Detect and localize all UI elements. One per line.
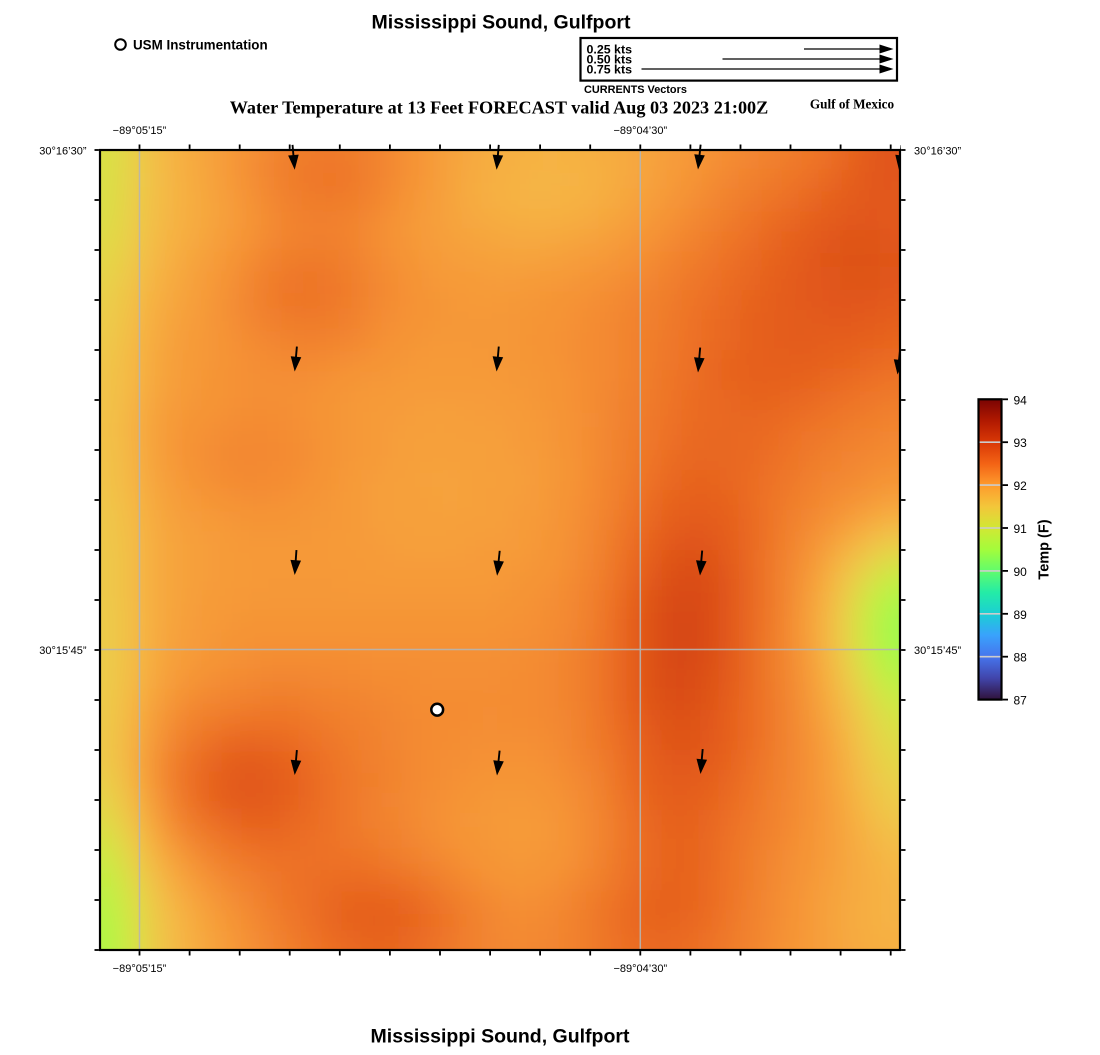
svg-text:CURRENTS Vectors: CURRENTS Vectors — [584, 84, 687, 96]
svg-text:Gulf of Mexico: Gulf of Mexico — [810, 97, 895, 112]
svg-text:94: 94 — [1014, 393, 1028, 407]
svg-text:−89°05’15”: −89°05’15” — [113, 963, 167, 975]
svg-text:93: 93 — [1014, 436, 1028, 450]
svg-text:87: 87 — [1014, 694, 1028, 708]
svg-text:−89°04’30”: −89°04’30” — [613, 125, 667, 137]
svg-text:88: 88 — [1014, 651, 1028, 665]
svg-text:30°15’45”: 30°15’45” — [39, 645, 87, 657]
svg-text:30°16’30”: 30°16’30” — [914, 146, 962, 158]
svg-text:0.75 kts: 0.75 kts — [587, 63, 633, 77]
svg-text:−89°05’15”: −89°05’15” — [113, 125, 167, 137]
svg-text:30°16’30”: 30°16’30” — [39, 146, 87, 158]
svg-text:30°15’45”: 30°15’45” — [914, 645, 962, 657]
svg-text:USM Instrumentation: USM Instrumentation — [133, 38, 268, 53]
svg-text:89: 89 — [1014, 608, 1028, 622]
svg-text:Mississippi Sound, Gulfport: Mississippi Sound, Gulfport — [371, 1026, 630, 1048]
svg-text:Mississippi Sound, Gulfport: Mississippi Sound, Gulfport — [372, 12, 631, 34]
svg-text:−89°04’30”: −89°04’30” — [613, 963, 667, 975]
svg-text:Temp (F): Temp (F) — [1037, 519, 1053, 579]
svg-text:90: 90 — [1014, 565, 1028, 579]
svg-text:91: 91 — [1014, 522, 1028, 536]
svg-text:92: 92 — [1014, 479, 1028, 493]
svg-text:Water Temperature at 13 Feet F: Water Temperature at 13 Feet FORECAST va… — [230, 98, 769, 118]
